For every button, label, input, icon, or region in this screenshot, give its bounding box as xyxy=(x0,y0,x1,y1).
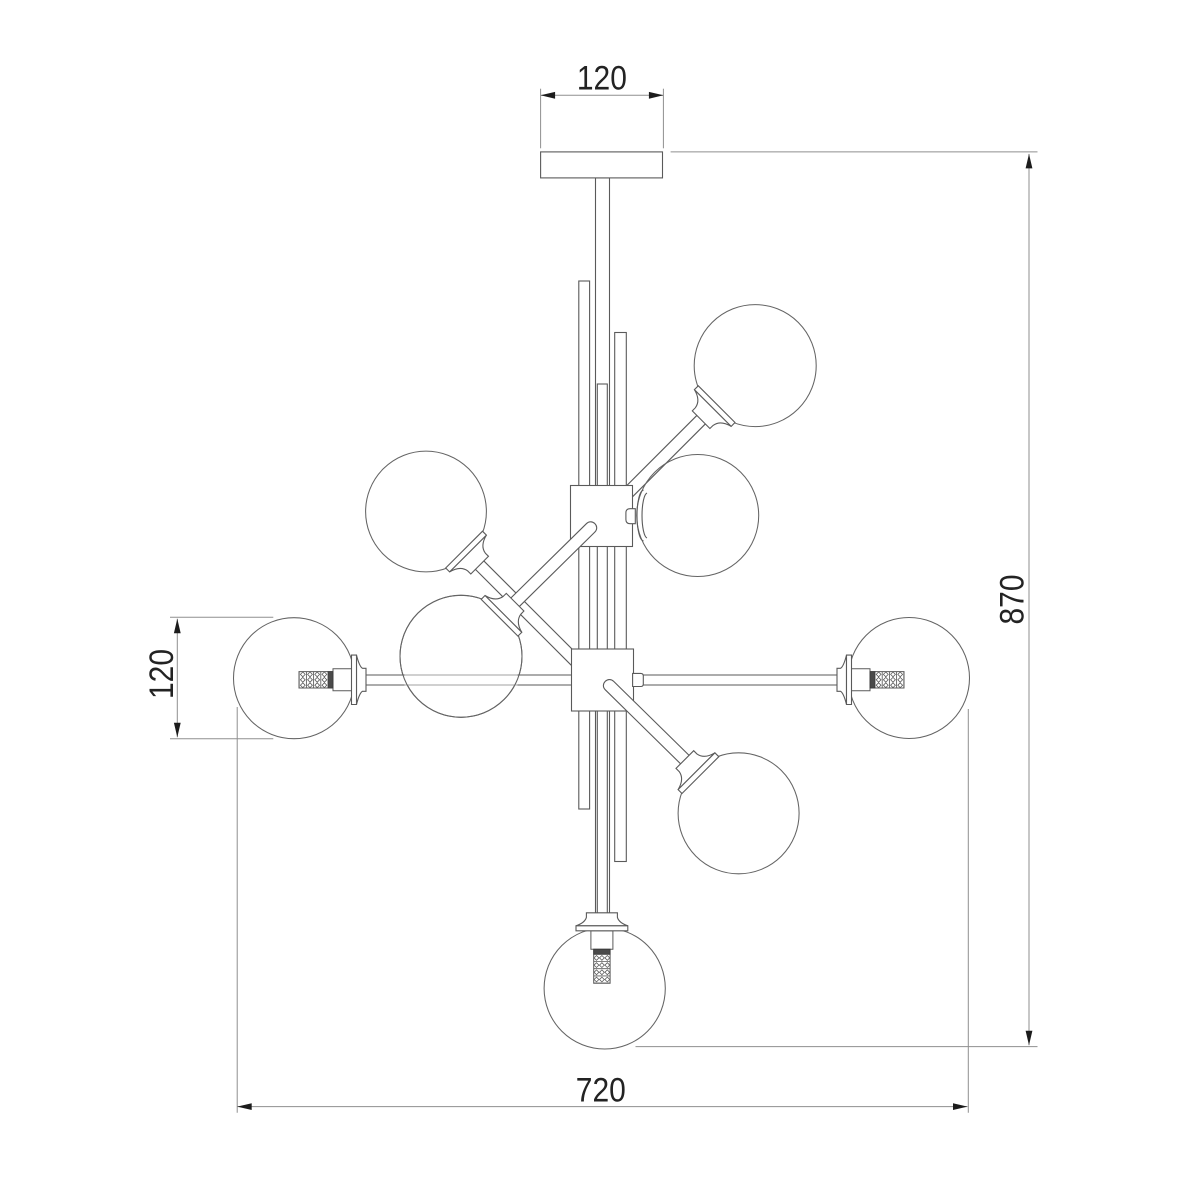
svg-text:120: 120 xyxy=(577,59,627,97)
svg-text:720: 720 xyxy=(576,1072,626,1110)
svg-text:870: 870 xyxy=(993,575,1031,625)
svg-text:120: 120 xyxy=(143,649,181,699)
